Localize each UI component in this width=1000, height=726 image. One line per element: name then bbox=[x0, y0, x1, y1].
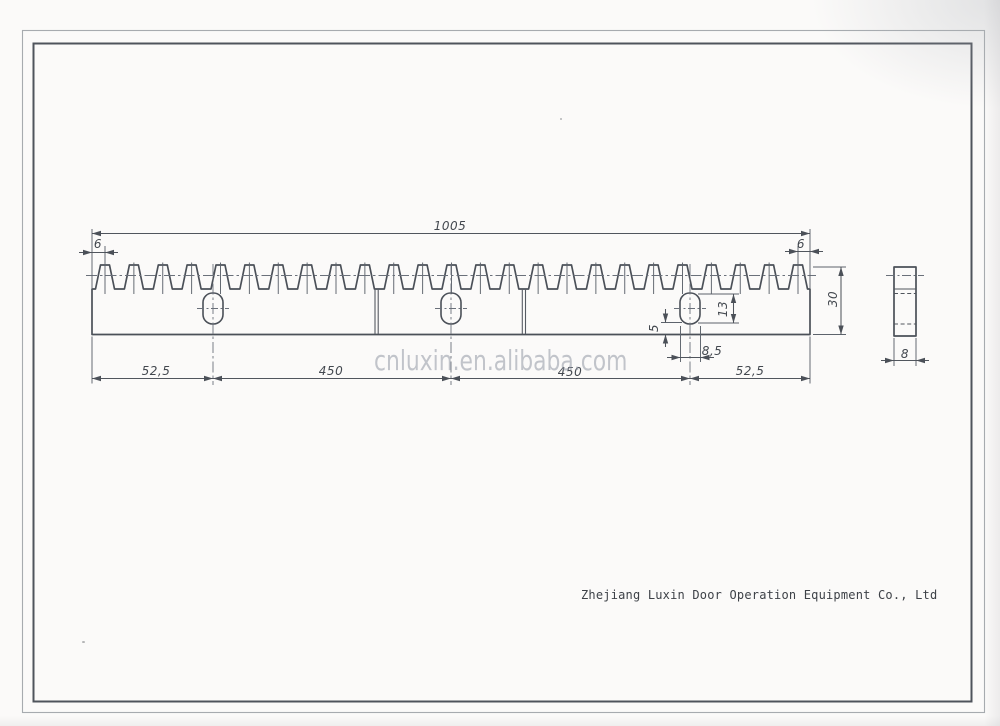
dim-total-length: 1005 bbox=[420, 219, 480, 233]
scan-speck bbox=[560, 118, 562, 120]
dim-hole-height: 13 bbox=[716, 296, 730, 322]
dim-thickness: 8 bbox=[895, 347, 915, 361]
dim-left-edge-to-hole: 52,5 bbox=[126, 364, 186, 378]
dim-left-end-offset: 6 bbox=[88, 237, 108, 251]
dim-hole-spacing-left: 450 bbox=[306, 364, 356, 378]
watermark: cnluxin.en.alibaba.com bbox=[374, 344, 627, 377]
dim-hole-to-right-edge: 52,5 bbox=[720, 364, 780, 378]
paper: 1005 6 6 30 13 5 8,5 52,5 450 450 52,5 8… bbox=[0, 0, 1000, 726]
dim-hole-width: 8,5 bbox=[692, 344, 732, 358]
company-name: Zhejiang Luxin Door Operation Equipment … bbox=[581, 588, 937, 602]
dim-right-end-offset: 6 bbox=[791, 237, 811, 251]
dim-hole-bottom-offset: 5 bbox=[647, 316, 661, 340]
dim-height: 30 bbox=[826, 286, 840, 312]
scan-speck bbox=[82, 641, 85, 643]
